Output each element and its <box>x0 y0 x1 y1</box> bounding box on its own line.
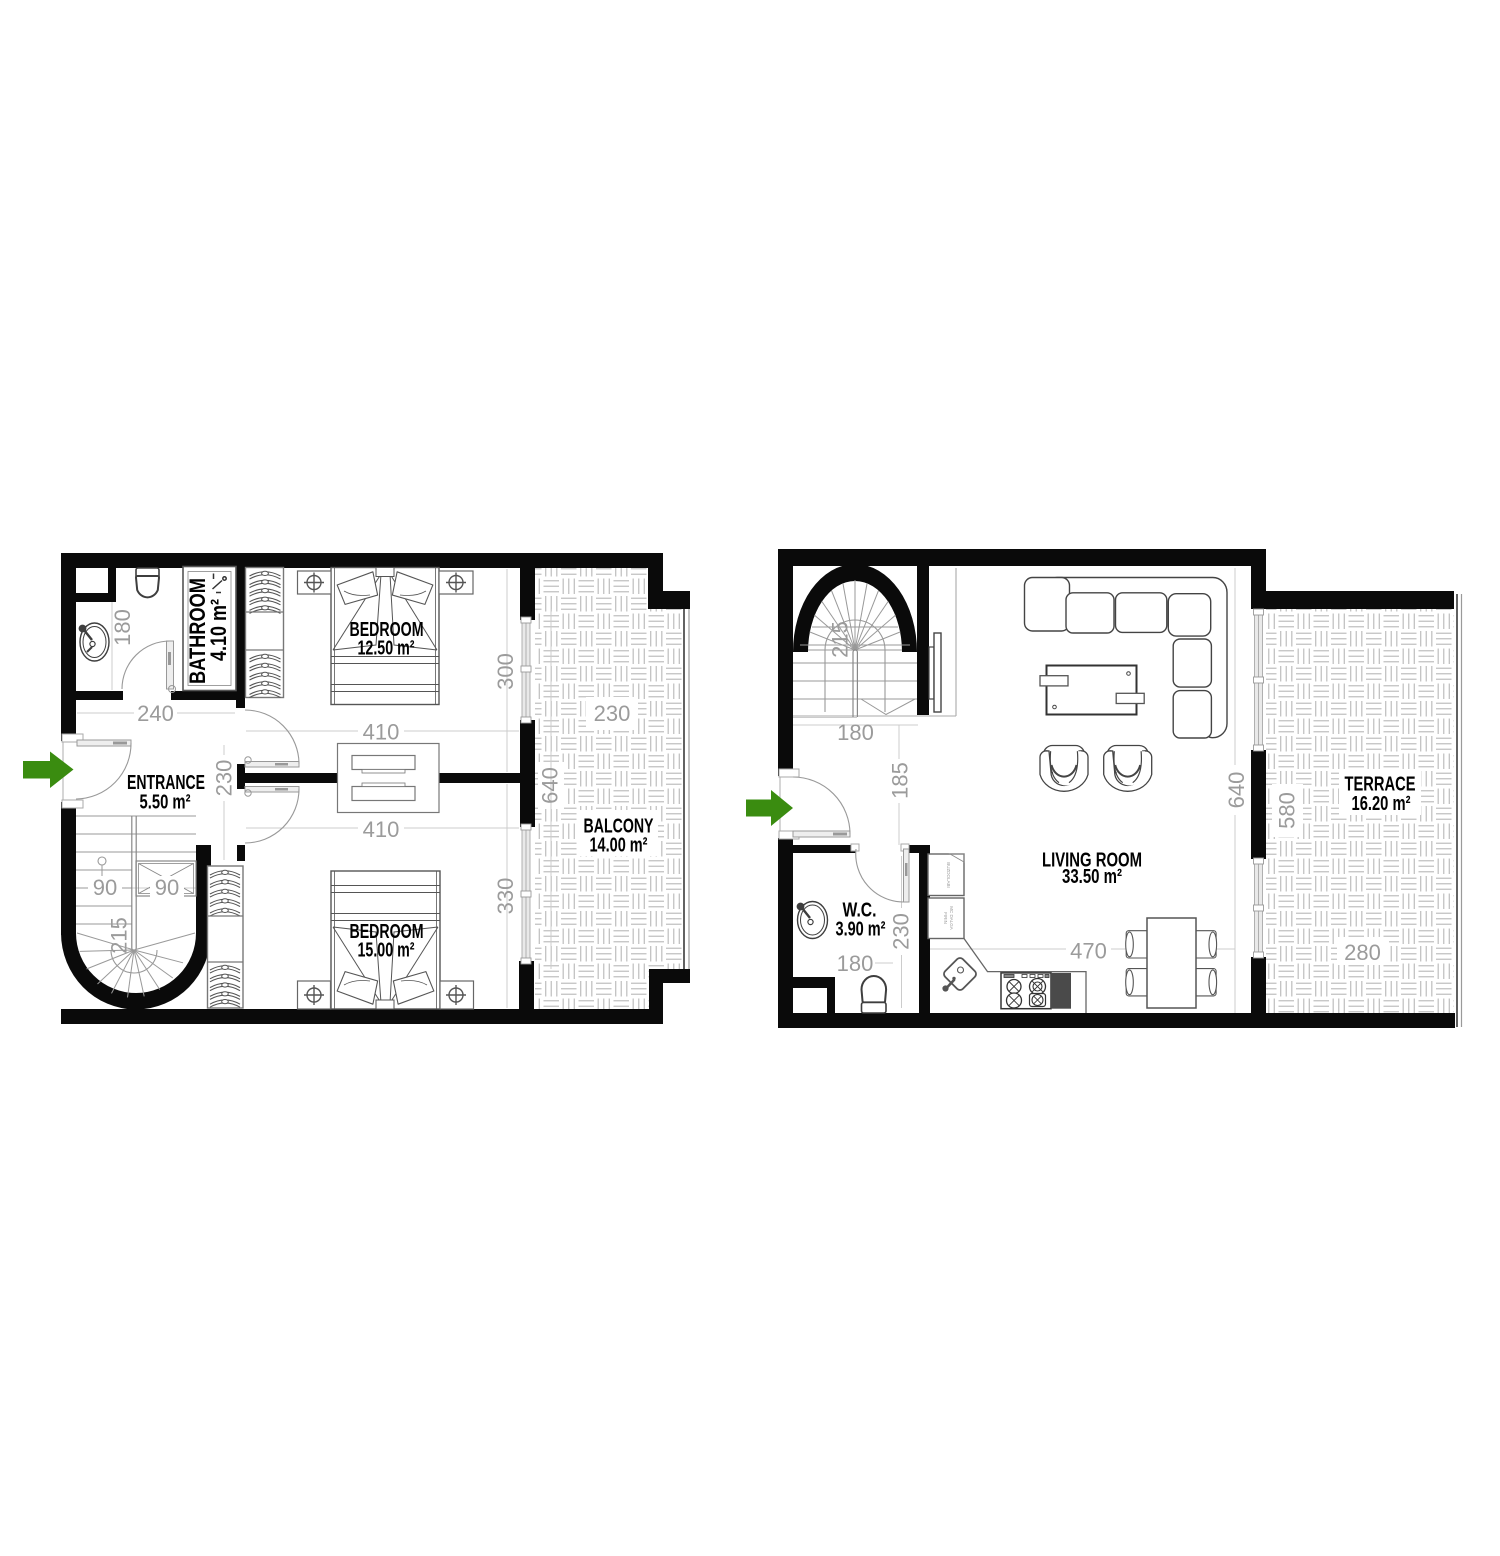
svg-text:330: 330 <box>493 878 518 915</box>
svg-text:90: 90 <box>93 875 117 900</box>
svg-text:410: 410 <box>363 817 400 842</box>
svg-text:FIRIN: FIRIN <box>943 912 948 924</box>
svg-text:240: 240 <box>137 701 174 726</box>
svg-text:215: 215 <box>828 621 853 658</box>
svg-text:230: 230 <box>594 701 631 726</box>
svg-text:640: 640 <box>538 767 563 804</box>
svg-text:180: 180 <box>837 720 874 745</box>
svg-text:3.90 m²: 3.90 m² <box>836 918 886 941</box>
svg-text:230: 230 <box>212 760 237 797</box>
svg-text:90: 90 <box>155 875 179 900</box>
svg-text:16.20 m²: 16.20 m² <box>1352 792 1411 815</box>
svg-text:300: 300 <box>493 653 518 690</box>
svg-text:580: 580 <box>1275 792 1300 829</box>
svg-text:4.10 m²: 4.10 m² <box>206 599 231 661</box>
svg-text:15.00 m²: 15.00 m² <box>358 939 415 962</box>
svg-text:33.50 m²: 33.50 m² <box>1062 865 1122 888</box>
svg-text:5.50 m²: 5.50 m² <box>140 791 191 814</box>
svg-text:230: 230 <box>889 913 914 950</box>
svg-text:470: 470 <box>1070 939 1107 964</box>
svg-text:280: 280 <box>1344 940 1381 965</box>
svg-text:215: 215 <box>107 917 132 954</box>
svg-text:640: 640 <box>1224 772 1249 809</box>
svg-text:410: 410 <box>363 720 400 745</box>
svg-text:12.50 m²: 12.50 m² <box>358 637 415 660</box>
svg-text:185: 185 <box>888 762 913 799</box>
svg-text:180: 180 <box>837 951 874 976</box>
svg-text:180: 180 <box>110 609 135 646</box>
svg-text:14.00 m²: 14.00 m² <box>590 834 648 857</box>
svg-text:MC DALGA: MC DALGA <box>949 906 954 930</box>
svg-text:BUZDOLABI: BUZDOLABI <box>946 862 951 888</box>
